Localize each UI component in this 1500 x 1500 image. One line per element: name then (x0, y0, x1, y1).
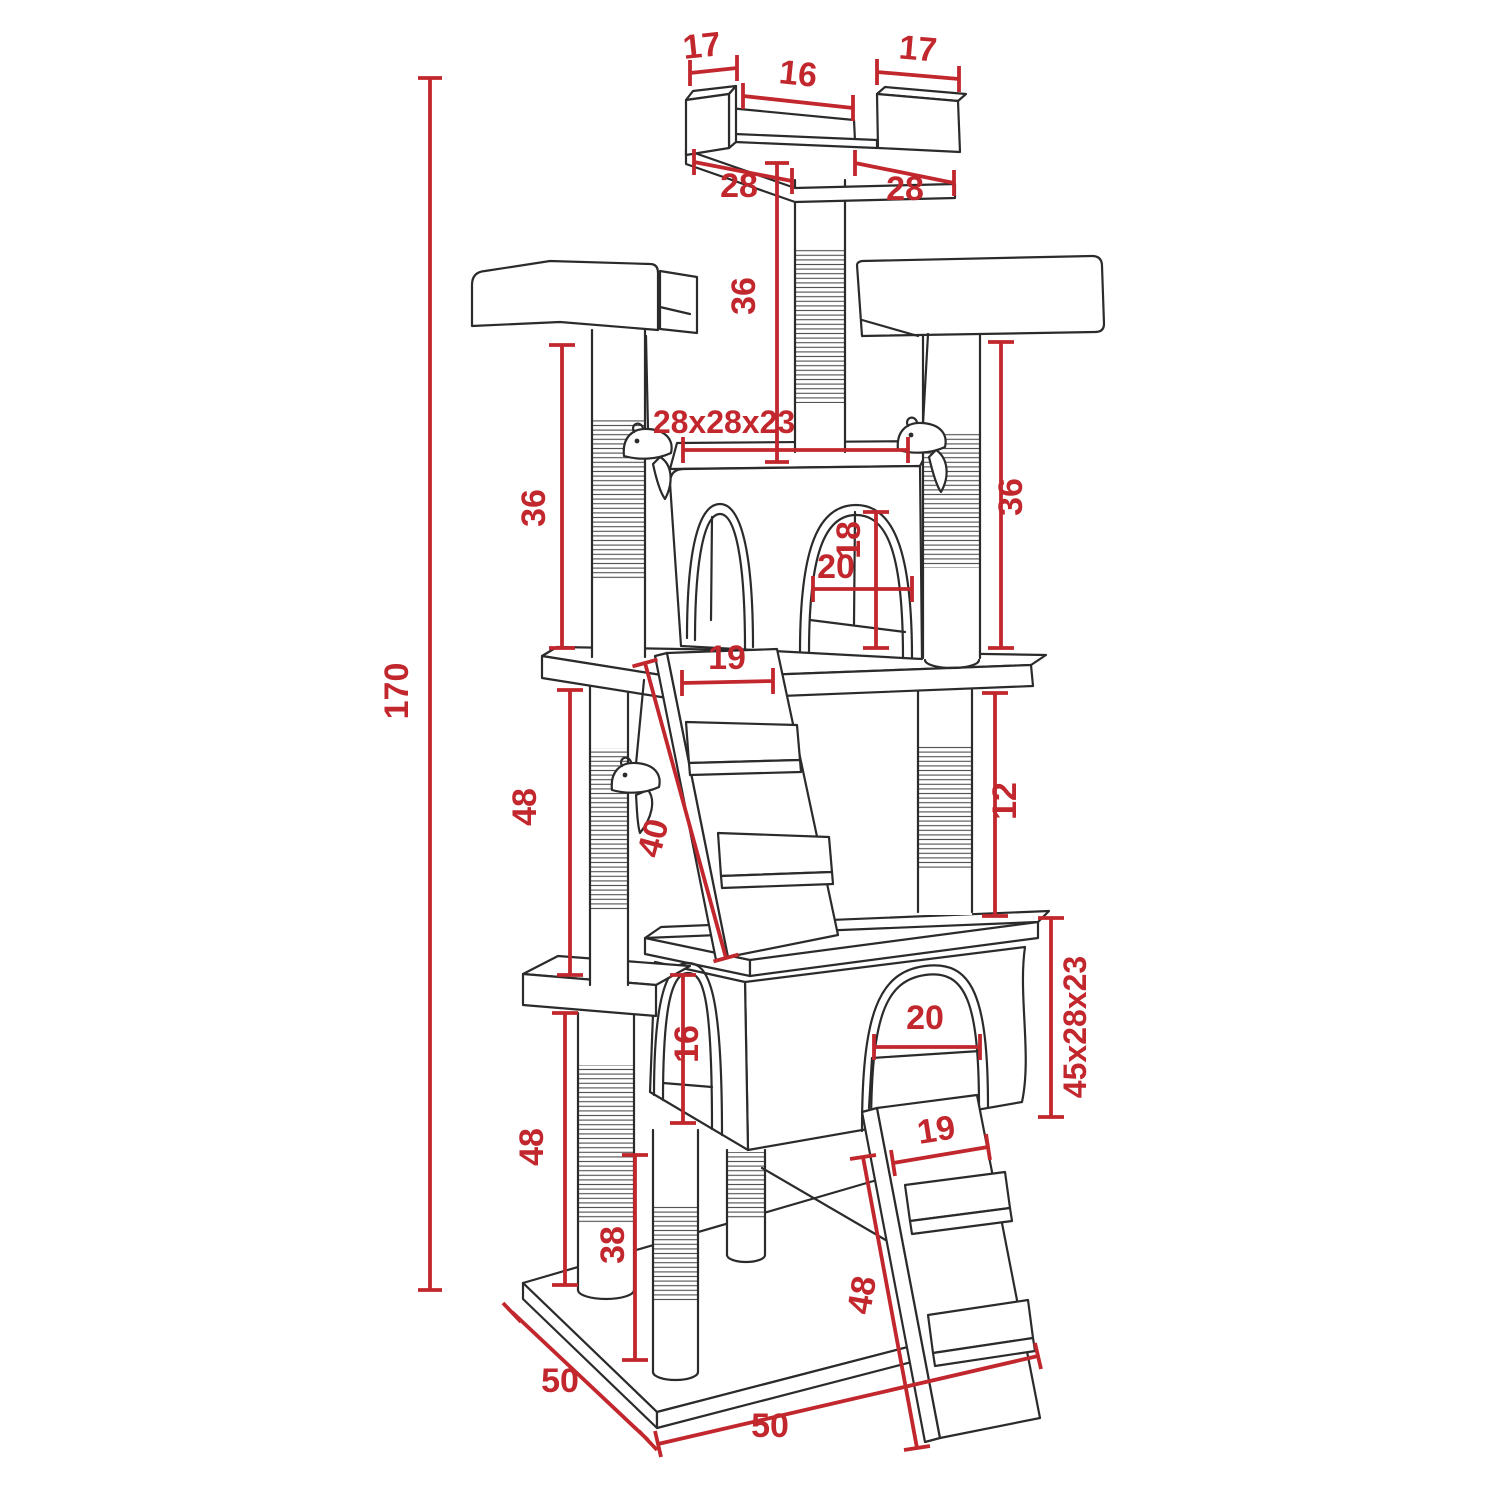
upper-left-scratching-post (592, 330, 645, 657)
dim-base-depth: 50 (541, 1362, 579, 1400)
dim-right-upper-post: 36 (992, 478, 1030, 516)
cat-tree-diagram: 17 16 17 28 28 36 28x28x23 36 36 18 20 1… (0, 0, 1500, 1500)
top-right-bed (857, 256, 1104, 336)
bottom-back-scratching-post (727, 1150, 765, 1262)
dim-lower-arch-height: 16 (668, 1025, 706, 1063)
dim-top-base-right: 28 (886, 170, 924, 208)
center-scratching-pole (795, 180, 845, 452)
dim-upper-arch-width: 20 (817, 548, 855, 586)
dim-lower-ramp-width: 19 (915, 1108, 958, 1151)
top-left-bed (472, 261, 697, 333)
upper-right-scratching-post (923, 332, 980, 668)
upper-condo (670, 441, 933, 659)
dim-top-cap-left: 17 (681, 25, 723, 67)
diagram-page: 17 16 17 28 28 36 28x28x23 36 36 18 20 1… (0, 0, 1500, 1500)
middle-right-scratching-post (918, 690, 972, 915)
middle-left-scratching-post (590, 658, 628, 988)
dim-center-lower-post: 38 (594, 1226, 632, 1264)
dim-upper-condo-size: 28x28x23 (653, 404, 795, 440)
dim-top-cap-right: 17 (897, 28, 938, 69)
dim-lower-condo-size: 45x28x23 (1057, 956, 1093, 1098)
dim-top-pole-height: 36 (725, 277, 763, 315)
dim-total-height: 170 (378, 663, 416, 720)
dim-lower-arch-width: 20 (906, 999, 944, 1037)
dim-lower-ramp-length: 48 (840, 1273, 884, 1317)
dim-left-upper-post: 36 (515, 489, 553, 527)
dim-upper-ramp-width: 19 (708, 639, 746, 677)
bottom-center-scratching-post (653, 1130, 698, 1380)
dim-top-gap: 16 (777, 53, 819, 95)
dim-left-lower-post: 48 (513, 1128, 551, 1166)
dim-right-middle-post: 12 (986, 782, 1024, 820)
dim-base-width: 50 (751, 1407, 789, 1445)
dim-upper-ramp-length: 40 (630, 815, 676, 861)
dim-left-middle-post: 48 (506, 788, 544, 826)
dim-top-base-left: 28 (720, 167, 758, 205)
